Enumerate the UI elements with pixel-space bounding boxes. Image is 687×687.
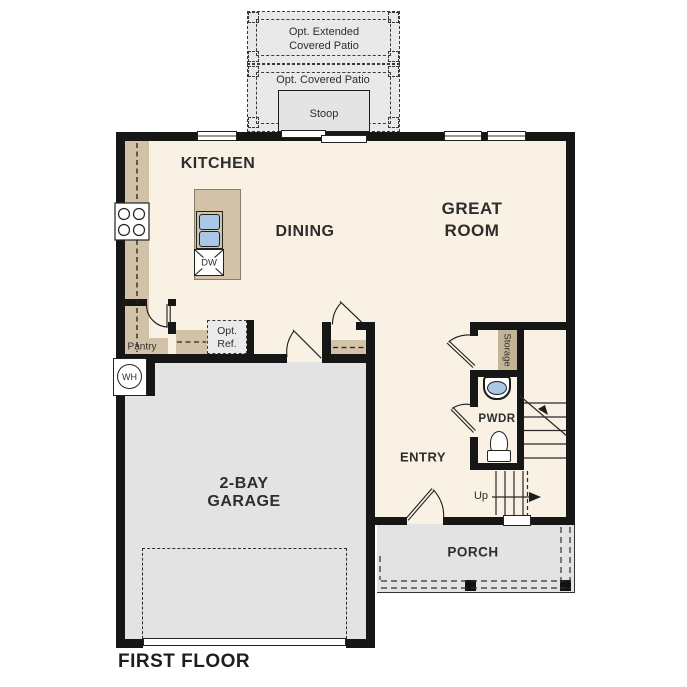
label-great-room: GREAT — [442, 199, 503, 219]
label-garage: 2-BAY — [219, 475, 268, 493]
label-garage: GARAGE — [207, 493, 280, 511]
label-storage: Storage — [502, 333, 513, 366]
label-up: Up — [474, 490, 488, 502]
label-great-room: ROOM — [445, 221, 500, 241]
label-kitchen: KITCHEN — [181, 155, 256, 173]
storage-door — [447, 335, 475, 368]
closet-door — [332, 301, 365, 325]
garage-entry-door — [287, 330, 322, 358]
plan-linework — [0, 0, 687, 687]
label-entry: ENTRY — [400, 450, 446, 465]
label-dining: DINING — [276, 223, 335, 241]
cooktop — [115, 203, 149, 240]
label-extended-patio: Covered Patio — [289, 40, 359, 52]
label-dw: DW — [200, 258, 218, 269]
label-pwdr: PWDR — [478, 413, 515, 425]
label-pantry: Pantry — [128, 342, 157, 353]
label-wh: WH — [122, 372, 137, 382]
label-opt-ref: Ref. — [217, 338, 236, 350]
pantry-door — [147, 304, 171, 327]
counter-centerlines — [137, 143, 365, 352]
label-stoop: Stoop — [310, 108, 339, 120]
label-extended-patio: Opt. Extended — [289, 26, 359, 38]
label-opt-ref: Opt. — [217, 325, 237, 337]
front-door — [406, 489, 444, 521]
label-covered-patio: Opt. Covered Patio — [276, 74, 370, 86]
pwdr-door — [451, 404, 476, 432]
label-porch: PORCH — [447, 545, 498, 560]
plan-title: FIRST FLOOR — [118, 651, 250, 673]
floor-plan-canvas: KITCHEN DINING GREAT ROOM 2-BAY GARAGE E… — [0, 0, 687, 687]
